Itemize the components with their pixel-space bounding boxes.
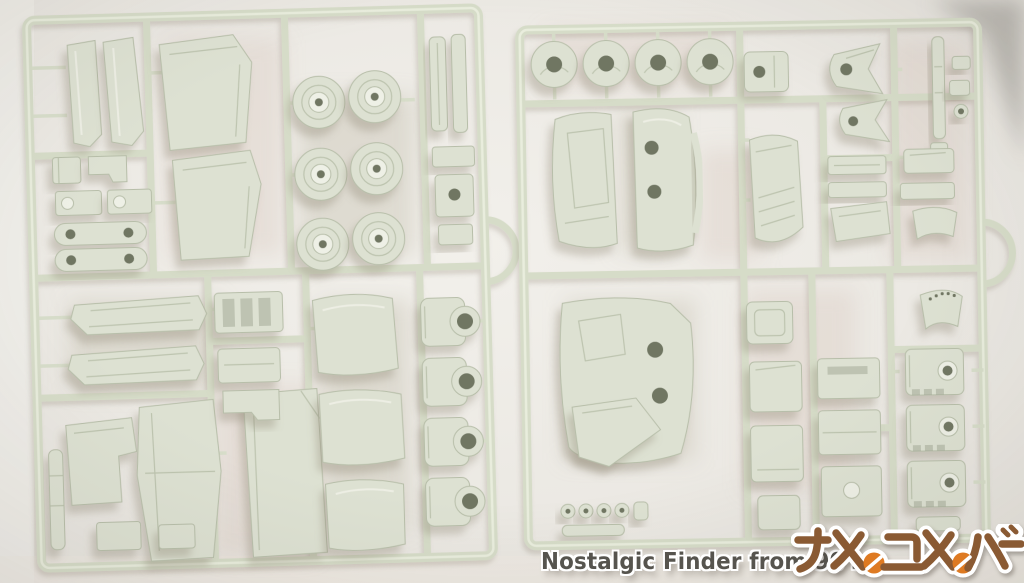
scene-svg	[0, 0, 1024, 583]
vignette	[0, 0, 1024, 583]
photo-model-kit-runners: Nostalgic Finder from 90's アメのユメのバー	[0, 0, 1024, 583]
